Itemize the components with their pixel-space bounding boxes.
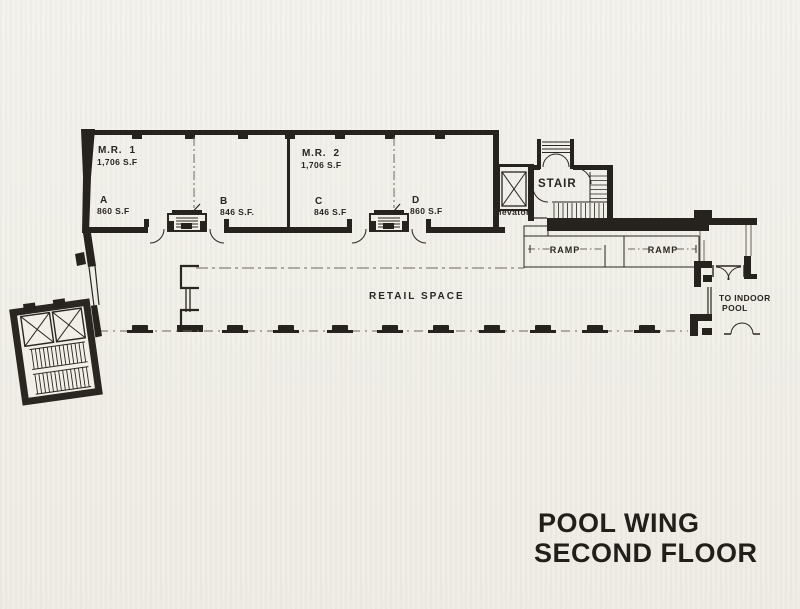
room-label-c: C	[315, 196, 323, 207]
top-block-walls	[81, 129, 499, 233]
double-door-lower	[724, 323, 760, 334]
stair-treads-lower	[554, 203, 604, 219]
elevator-x-icon	[502, 172, 526, 206]
double-door-upper	[713, 265, 744, 280]
door-arc	[412, 229, 426, 243]
room-label-d: D	[412, 195, 420, 206]
room-area-a: 860 S.F	[97, 206, 130, 216]
door-arc	[210, 229, 224, 243]
channel-column	[177, 266, 203, 332]
elevator-label: Elevator	[493, 207, 530, 217]
leader-lines	[187, 204, 400, 218]
demising-wall	[287, 133, 290, 229]
stair-treads-upper	[590, 176, 607, 199]
room-area-mr1: 1,706 S.F	[97, 157, 137, 167]
southwest-stair-tower	[8, 295, 103, 406]
room-label-mr2: M.R. 2	[302, 148, 340, 159]
floor-plan-svg: M.R. 1 1,706 S.F A 860 S.F B 846 S.F. M.…	[0, 0, 800, 609]
to-indoor-pool-label-line1: TO INDOOR	[719, 293, 771, 303]
vestibule-treads	[542, 142, 570, 153]
door-arc	[352, 229, 366, 243]
room-label-mr1: M.R. 1	[98, 145, 136, 156]
room-area-mr2: 1,706 S.F	[301, 160, 341, 170]
ramp-landing	[524, 226, 548, 236]
ramp-left-label: RAMP	[550, 245, 581, 255]
room-area-d: 860 S.F	[410, 206, 443, 216]
plan-title-line2: SECOND FLOOR	[534, 538, 758, 568]
retail-space-label: RETAIL SPACE	[369, 291, 465, 302]
column-stubs	[127, 325, 660, 333]
door-arc	[150, 229, 164, 243]
pool-entry	[690, 231, 760, 336]
stair-label: STAIR	[538, 178, 577, 190]
double-door-arcs	[543, 154, 569, 167]
scanned-floor-plan-page: M.R. 1 1,706 S.F A 860 S.F B 846 S.F. M.…	[0, 0, 800, 609]
plan-title-line1: POOL WING	[538, 508, 700, 538]
room-area-c: 846 S.F	[314, 207, 347, 217]
room-area-b: 846 S.F.	[220, 207, 254, 217]
entry-kiosk-symbol	[370, 210, 408, 231]
left-wall-upper	[81, 129, 95, 177]
corridor-walls	[708, 287, 711, 314]
ramp-right-label: RAMP	[648, 245, 679, 255]
room-label-b: B	[220, 196, 228, 207]
room-label-a: A	[100, 195, 108, 206]
left-wall-lower	[82, 177, 91, 233]
window-wall-segment	[89, 266, 99, 306]
to-indoor-pool-label-line2: POOL	[722, 303, 748, 313]
entry-kiosk-symbol	[168, 210, 206, 231]
